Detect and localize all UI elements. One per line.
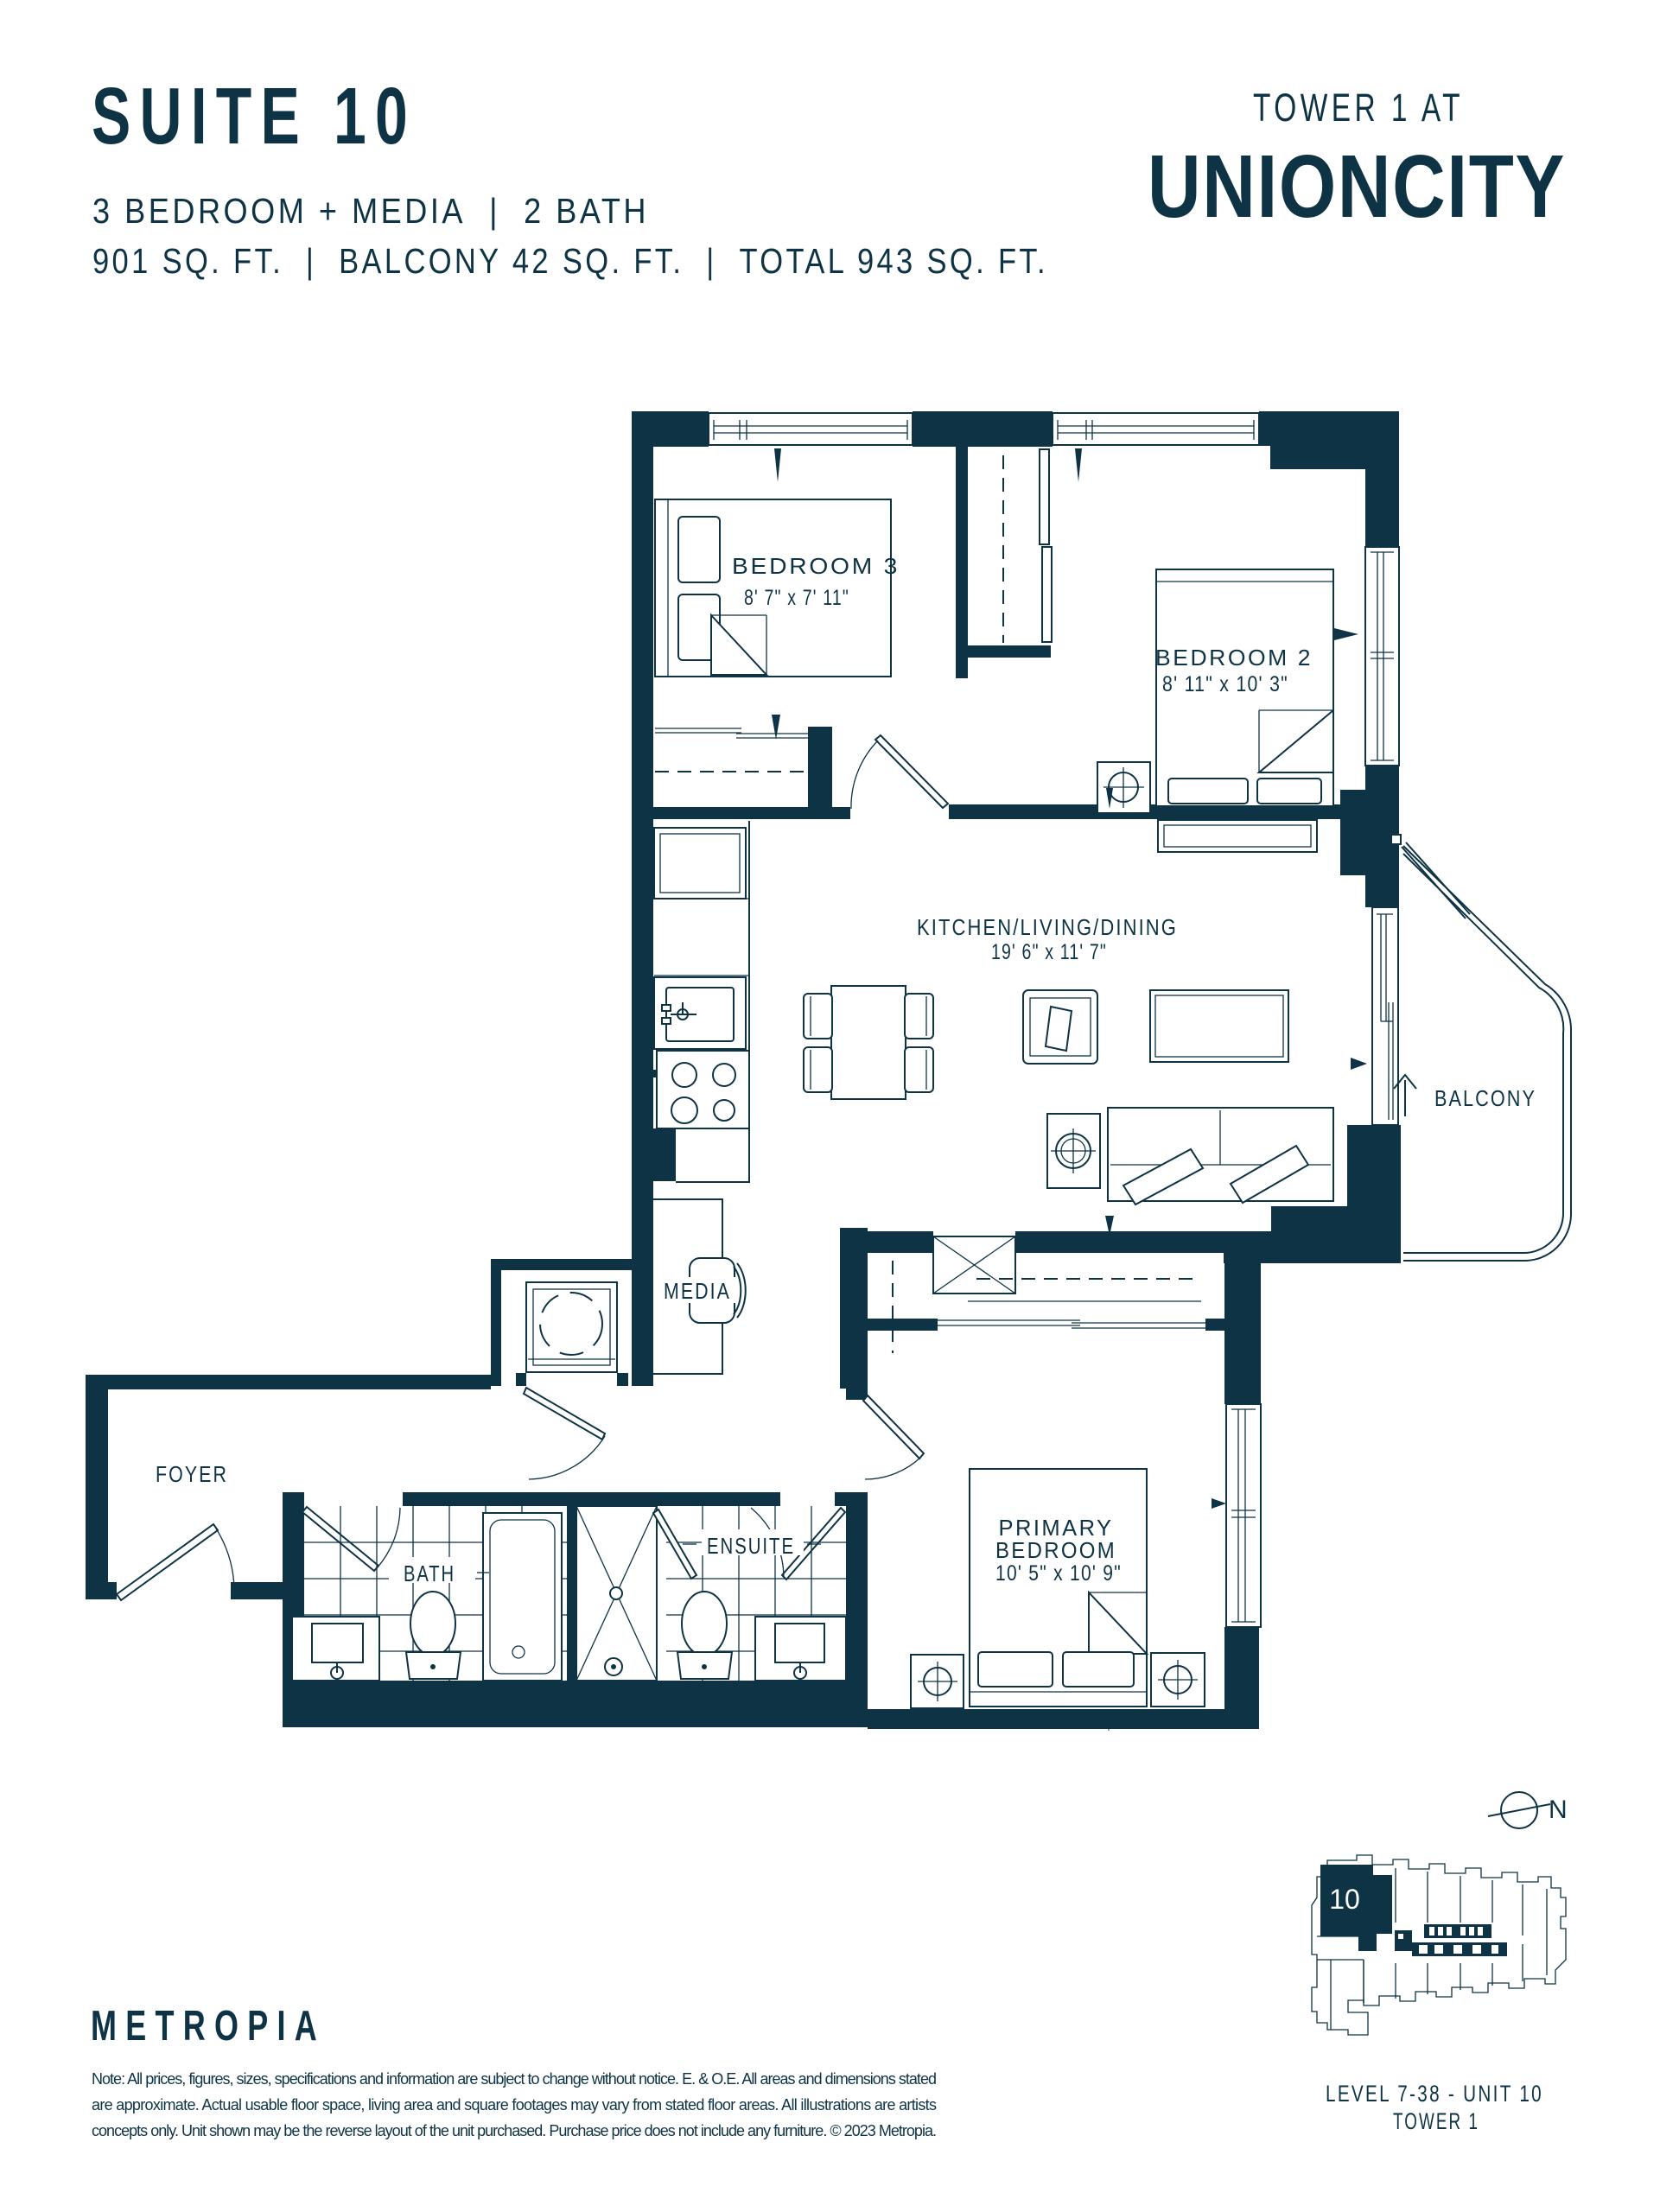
svg-text:TOWER 1: TOWER 1 — [1393, 2108, 1479, 2134]
svg-text:KITCHEN/LIVING/DINING: KITCHEN/LIVING/DINING — [917, 914, 1178, 940]
svg-text:901 SQ. FT. | BALCONY 42 SQ.: 901 SQ. FT. | BALCONY 42 SQ. FT. | TOTAL… — [92, 241, 1048, 281]
svg-text:ENSUITE: ENSUITE — [707, 1533, 795, 1559]
svg-text:BALCONY: BALCONY — [1434, 1085, 1536, 1111]
svg-text:8' 11" x 10' 3": 8' 11" x 10' 3" — [1162, 672, 1288, 696]
svg-text:BEDROOM 3: BEDROOM 3 — [732, 553, 900, 579]
svg-text:SUITE 10: SUITE 10 — [92, 71, 417, 161]
svg-text:10' 5" x 10' 9": 10' 5" x 10' 9" — [995, 1561, 1122, 1586]
svg-text:UNIONCITY: UNIONCITY — [1148, 137, 1566, 236]
svg-text:BEDROOM: BEDROOM — [995, 1537, 1116, 1563]
svg-text:TOWER 1 AT: TOWER 1 AT — [1253, 86, 1464, 130]
svg-text:concepts only. Unit shown may: concepts only. Unit shown may be the rev… — [92, 2122, 937, 2139]
svg-text:N: N — [1549, 1796, 1568, 1824]
svg-text:FOYER: FOYER — [156, 1461, 228, 1487]
svg-text:Note: All prices, figures, siz: Note: All prices, figures, sizes, specif… — [92, 2070, 937, 2088]
svg-text:are approximate. Actual usable: are approximate. Actual usable floor spa… — [92, 2096, 937, 2113]
svg-text:BEDROOM 2: BEDROOM 2 — [1155, 645, 1313, 671]
svg-text:19' 6" x 11' 7": 19' 6" x 11' 7" — [991, 940, 1107, 964]
svg-text:METROPIA: METROPIA — [91, 2003, 326, 2050]
svg-text:8' 7" x 7' 11": 8' 7" x 7' 11" — [744, 586, 849, 610]
svg-text:BATH: BATH — [404, 1560, 455, 1586]
svg-text:LEVEL 7-38 - UNIT 10: LEVEL 7-38 - UNIT 10 — [1326, 2081, 1543, 2107]
svg-text:10: 10 — [1329, 1884, 1360, 1915]
svg-text:MEDIA: MEDIA — [664, 1278, 731, 1304]
svg-text:3 BEDROOM + MEDIA | 2 BATH: 3 BEDROOM + MEDIA | 2 BATH — [92, 191, 649, 231]
